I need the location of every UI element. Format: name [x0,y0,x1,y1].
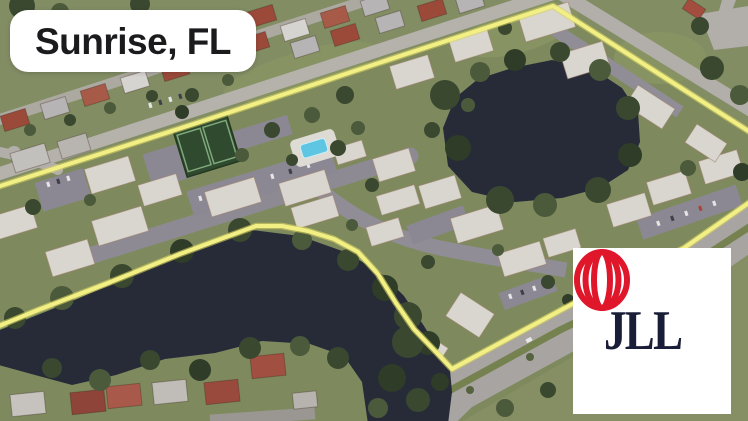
location-badge-text: Sunrise, FL [35,23,231,60]
jll-wordmark: JLL [604,303,681,359]
aerial-map-view: .bld{fill:#d9d6cf;stroke:#9c7a66;stroke-… [0,0,748,421]
jll-logo-card: JLL [573,248,731,414]
location-badge: Sunrise, FL [10,10,256,72]
